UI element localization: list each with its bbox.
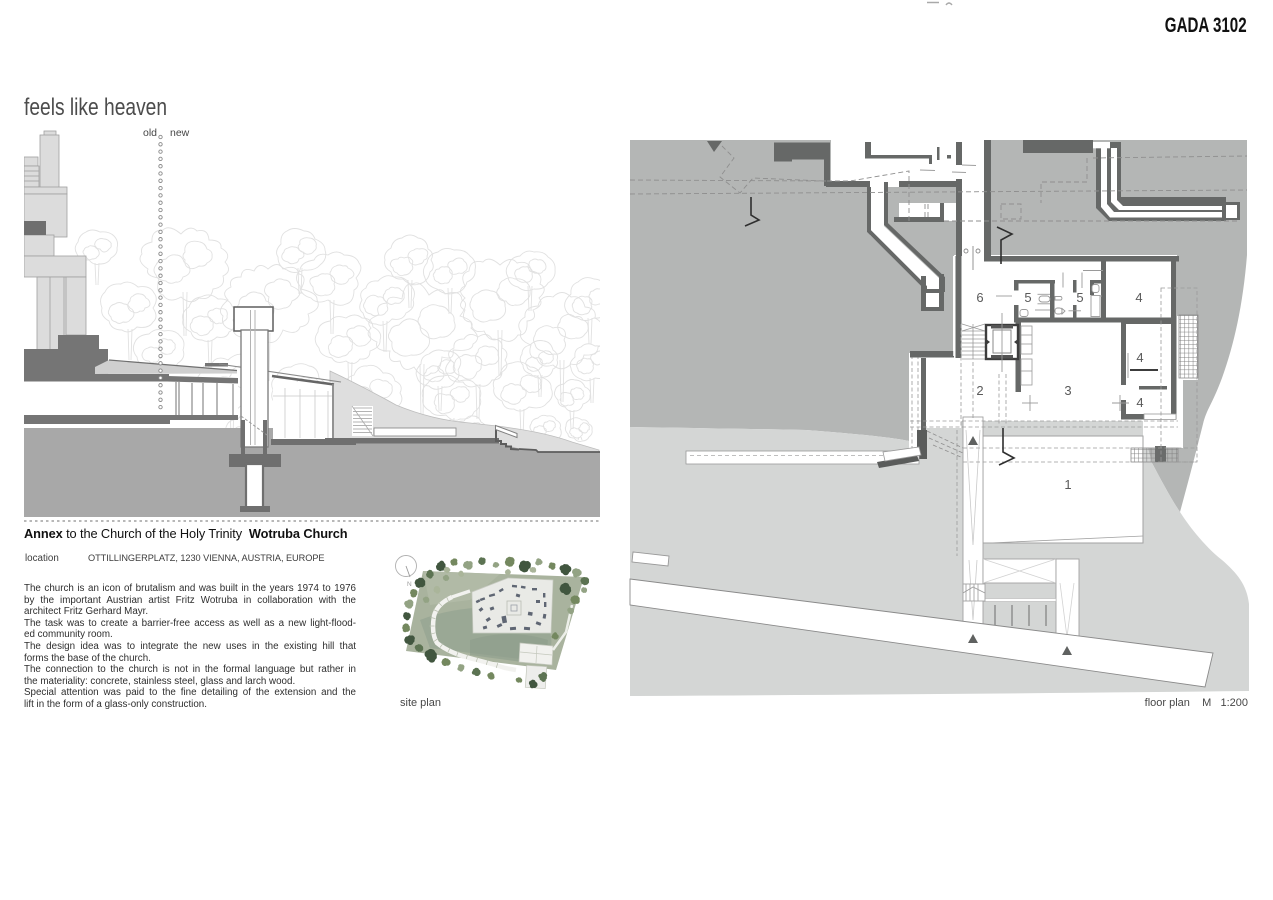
svg-text:5: 5 (1076, 290, 1083, 305)
svg-text:4: 4 (1136, 395, 1143, 410)
svg-text:3: 3 (1064, 383, 1071, 398)
svg-text:4: 4 (1136, 350, 1143, 365)
svg-text:new: new (170, 127, 190, 139)
svg-text:1: 1 (1064, 477, 1071, 492)
svg-text:old: old (143, 127, 157, 139)
svg-text:N: N (407, 581, 412, 588)
svg-text:5: 5 (1024, 290, 1031, 305)
svg-text:4: 4 (1135, 290, 1142, 305)
svg-text:6: 6 (976, 290, 983, 305)
svg-text:2: 2 (976, 383, 983, 398)
